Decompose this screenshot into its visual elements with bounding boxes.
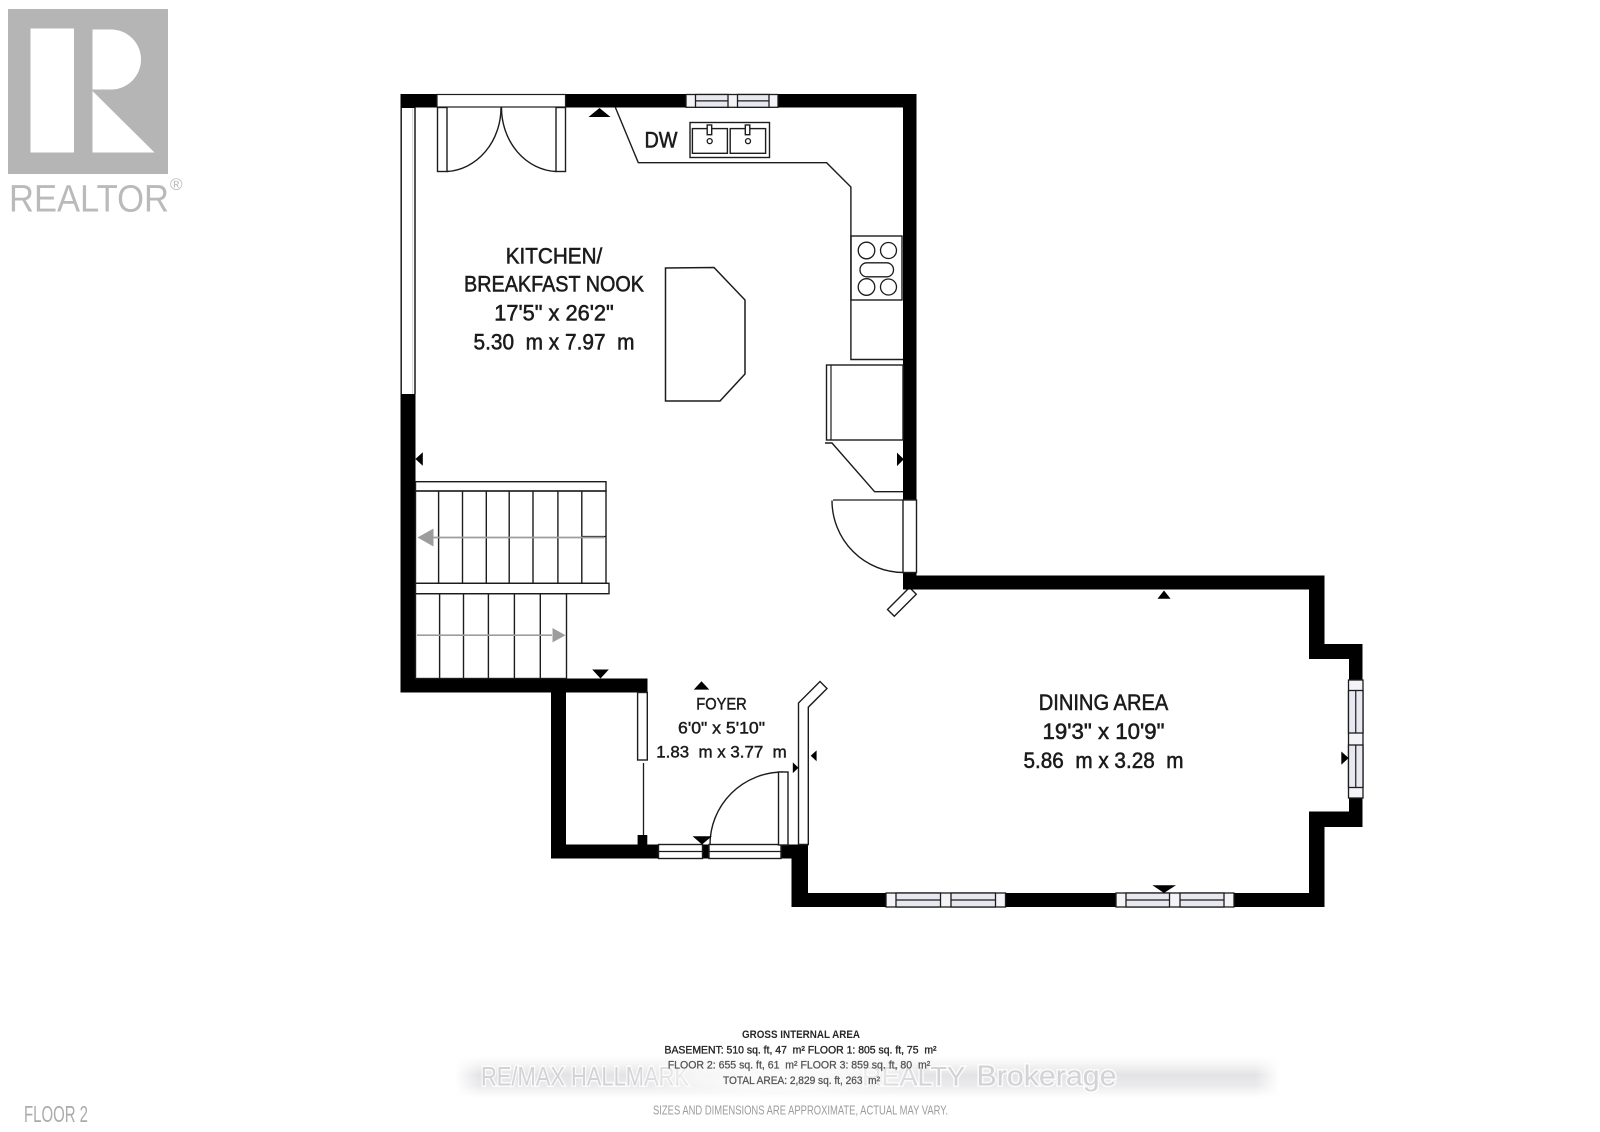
svg-text:5.86 m x 3.28 m: 5.86 m x 3.28 m <box>1024 748 1184 773</box>
svg-text:GROSS INTERNAL AREA: GROSS INTERNAL AREA <box>742 1029 860 1041</box>
svg-text:®: ® <box>170 175 183 194</box>
svg-text:TOTAL AREA: 2,829 sq. ft, 263: TOTAL AREA: 2,829 sq. ft, 263 m² <box>723 1075 880 1087</box>
svg-text:FLOOR 2: 655 sq. ft, 61 m² FL: FLOOR 2: 655 sq. ft, 61 m² FLOOR 3: 859 … <box>668 1060 931 1072</box>
svg-text:5.30 m x 7.97 m: 5.30 m x 7.97 m <box>474 330 635 355</box>
svg-text:DINING AREA: DINING AREA <box>1039 690 1169 715</box>
svg-text:19'3" x 10'9": 19'3" x 10'9" <box>1043 719 1165 744</box>
svg-text:KITCHEN/: KITCHEN/ <box>506 244 603 269</box>
svg-text:17'5" x 26'2": 17'5" x 26'2" <box>494 301 614 326</box>
svg-text:Brokerage: Brokerage <box>977 1061 1117 1093</box>
svg-text:1.83 m x 3.77 m: 1.83 m x 3.77 m <box>656 743 787 762</box>
svg-text:SIZES AND DIMENSIONS ARE APPRO: SIZES AND DIMENSIONS ARE APPROXIMATE, AC… <box>653 1104 948 1118</box>
svg-text:FLOOR 2: FLOOR 2 <box>24 1101 88 1127</box>
svg-text:FOYER: FOYER <box>696 695 747 714</box>
svg-text:REALTOR: REALTOR <box>9 179 169 221</box>
svg-text:DW: DW <box>645 128 678 153</box>
svg-text:6'0" x 5'10": 6'0" x 5'10" <box>678 719 765 738</box>
svg-text:BREAKFAST NOOK: BREAKFAST NOOK <box>464 272 644 297</box>
